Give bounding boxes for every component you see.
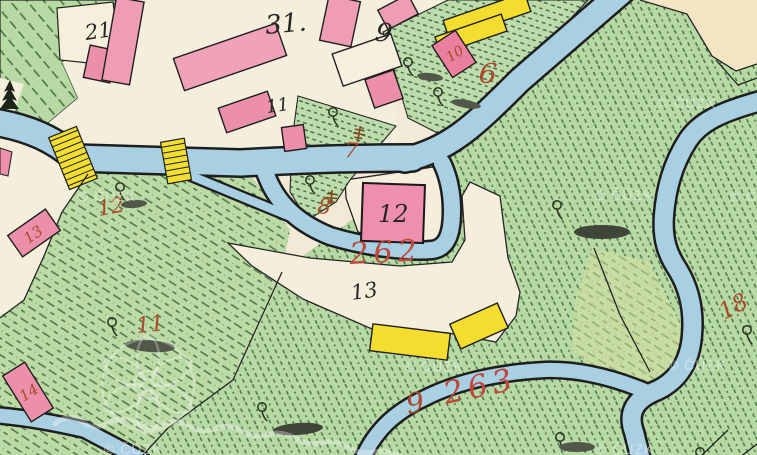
marsh-tuft-icon xyxy=(559,442,595,452)
house-number-21: 21 xyxy=(82,17,113,45)
house-number-13: 13 xyxy=(349,277,379,304)
building xyxy=(281,125,306,152)
plot-number-262: 262 xyxy=(348,233,423,272)
cuzk-watermark: © ČÚZK xyxy=(405,358,463,374)
parcel-number-6: 6 xyxy=(477,56,498,91)
cuzk-watermark: © ČÚZK xyxy=(658,95,716,111)
map-canvas: 10 13 14 xyxy=(0,0,757,455)
cuzk-watermark: © ČÚZK xyxy=(596,441,654,455)
parcel-number-8: 8 xyxy=(317,194,332,219)
house-number-31: 31. xyxy=(264,7,308,40)
house-number-11: 11 xyxy=(265,94,291,118)
cuzk-watermark: © ČÚZK xyxy=(730,188,757,204)
marsh-tuft-icon xyxy=(574,225,630,239)
parcel-number-11: 11 xyxy=(135,311,165,339)
cuzk-watermark: © ČÚZK xyxy=(78,188,136,204)
cuzk-watermark: © ČÚZK xyxy=(104,441,162,455)
house-number-12: 12 xyxy=(378,200,409,228)
cuzk-watermark: © ČÚZK xyxy=(595,187,653,203)
cadastral-map[interactable]: 10 13 14 xyxy=(0,0,757,455)
parcel-number-7: 7 xyxy=(344,138,360,163)
cuzk-watermark: © ČÚZK xyxy=(668,357,726,373)
